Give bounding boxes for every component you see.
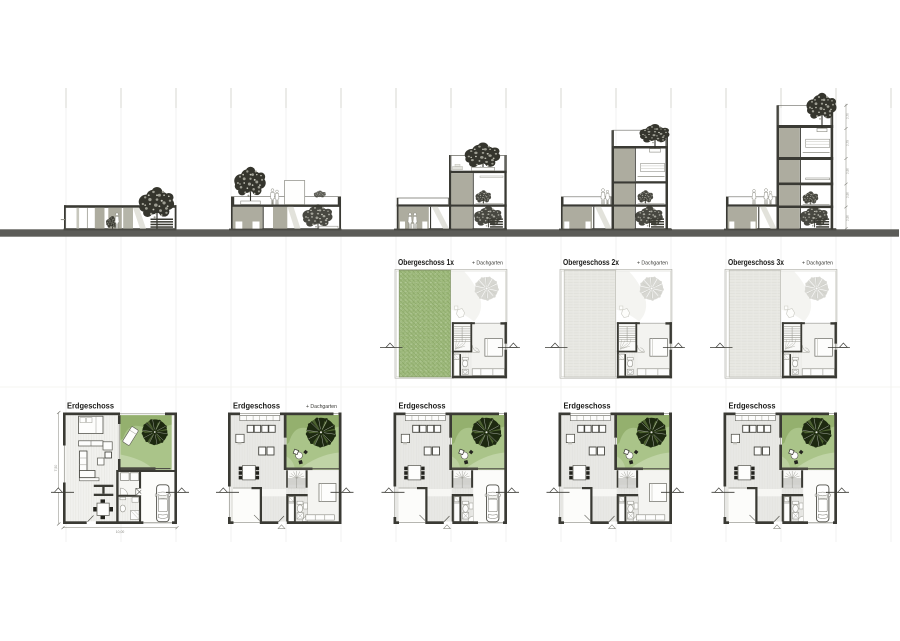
svg-text:Erdgeschoss: Erdgeschoss: [729, 400, 776, 410]
svg-text:Erdgeschoss: Erdgeschoss: [564, 400, 611, 410]
svg-text:Obergeschoss 1x: Obergeschoss 1x: [398, 257, 454, 267]
svg-text:Erdgeschoss: Erdgeschoss: [399, 400, 446, 410]
svg-text:2,50: 2,50: [846, 168, 850, 174]
svg-text:2,50: 2,50: [846, 192, 850, 198]
svg-text:+ Dachgarten: + Dachgarten: [472, 261, 503, 267]
svg-text:2,50: 2,50: [846, 215, 850, 221]
svg-text:Obergeschoss 3x: Obergeschoss 3x: [728, 257, 784, 267]
svg-text:Erdgeschoss: Erdgeschoss: [67, 400, 114, 410]
svg-text:Obergeschoss 2x: Obergeschoss 2x: [563, 257, 619, 267]
svg-text:2,75: 2,75: [846, 140, 850, 146]
svg-text:+ Dachgarten: + Dachgarten: [637, 261, 668, 267]
svg-text:10,00: 10,00: [116, 530, 125, 534]
svg-text:Erdgeschoss: Erdgeschoss: [233, 400, 280, 410]
svg-text:+ Dachgarten: + Dachgarten: [306, 404, 337, 410]
svg-text:7,50: 7,50: [54, 465, 58, 472]
svg-text:2,70: 2,70: [846, 113, 850, 119]
svg-text:+ Dachgarten: + Dachgarten: [802, 261, 833, 267]
